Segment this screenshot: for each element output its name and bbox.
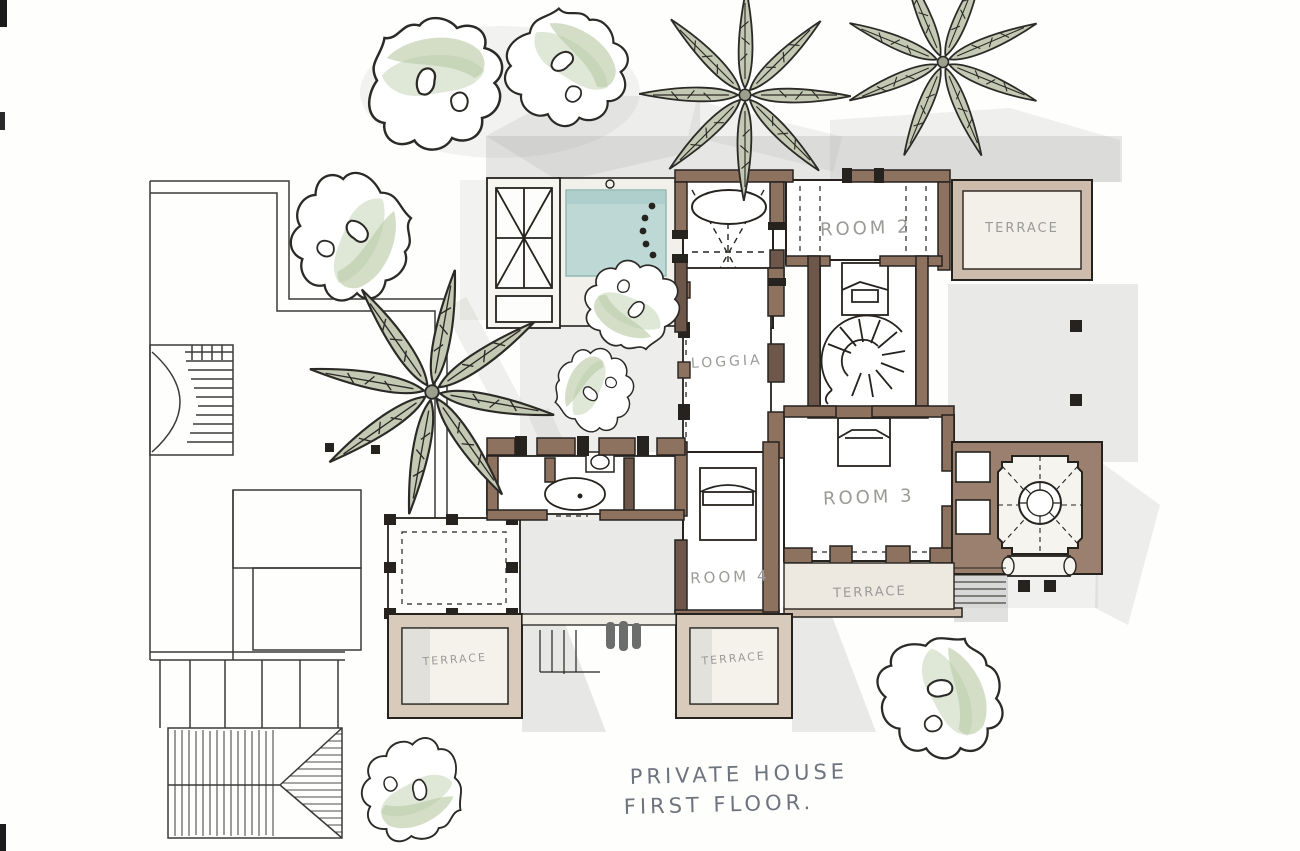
floor-plan-canvas: ROOM 2 TERRACE LOGGIA ROOM 3 ROOM 4 TERR… (0, 0, 1300, 851)
floor-plan-sketch: ROOM 2 TERRACE LOGGIA ROOM 3 ROOM 4 TERR… (0, 0, 1300, 851)
bath-wing (487, 452, 683, 516)
bush-strokes (606, 621, 641, 651)
colonnade-court (384, 514, 520, 619)
stair-wing (820, 260, 916, 416)
room2-label: ROOM 2 (820, 216, 912, 240)
terrace-mid-label: TERRACE (832, 584, 907, 602)
pavilion-porch (1008, 556, 1070, 576)
room4-label: ROOM 4 (690, 567, 770, 588)
terrace-top-right-label: TERRACE (984, 221, 1059, 236)
bed-room3 (838, 418, 890, 466)
bed-canopy (692, 190, 766, 224)
terrace-bottom-right (676, 614, 792, 718)
bed-room2 (842, 263, 888, 315)
bed-room4 (700, 468, 756, 540)
caption-line2: FIRST FLOOR. (624, 790, 815, 819)
room4 (683, 452, 773, 620)
trellis-pergola (487, 178, 560, 328)
room3-label: ROOM 3 (823, 485, 915, 509)
